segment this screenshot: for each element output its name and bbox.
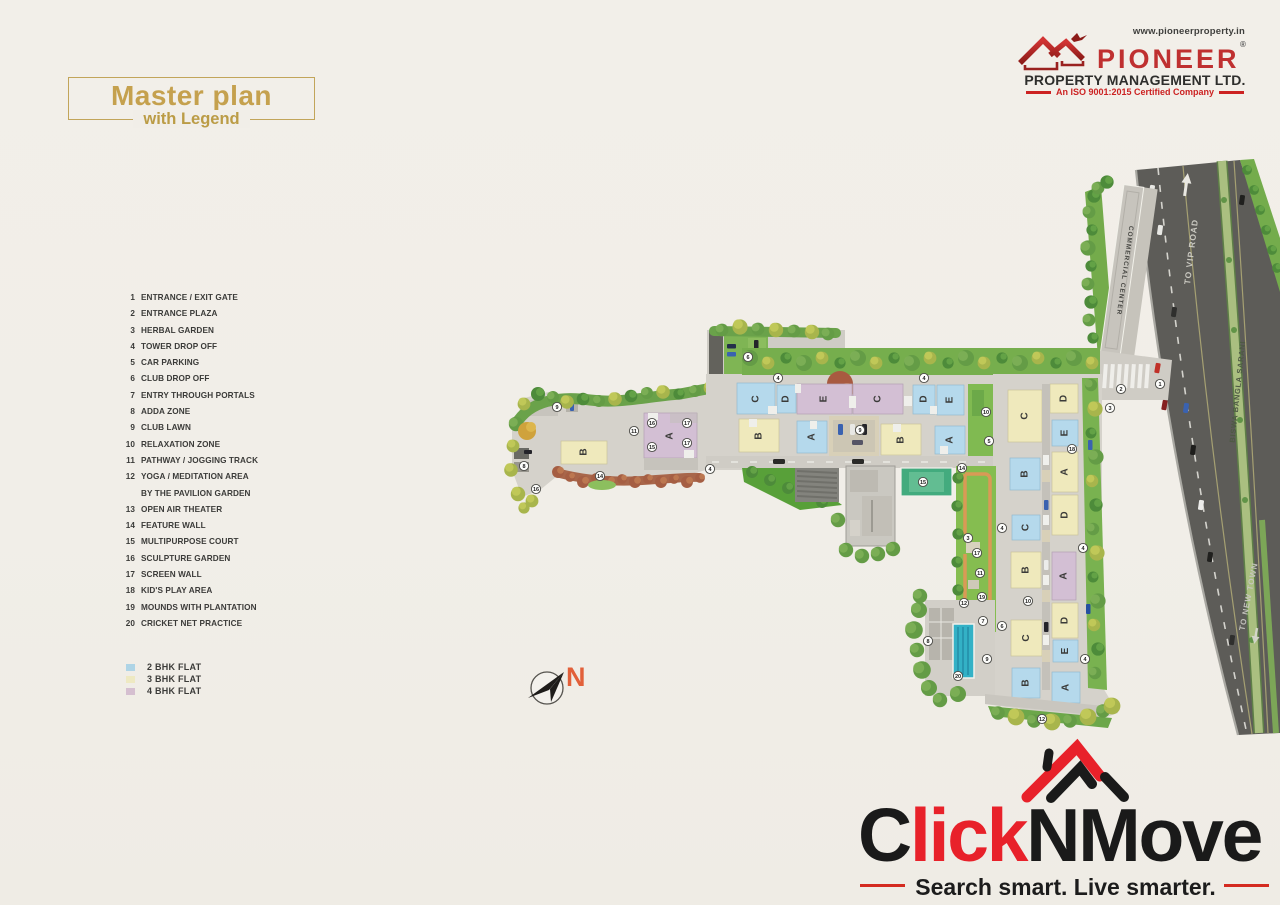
svg-text:10: 10 [983, 410, 989, 416]
svg-text:A: A [945, 436, 956, 443]
svg-text:D: D [1060, 617, 1071, 624]
svg-text:A: A [1060, 468, 1071, 475]
svg-text:6: 6 [746, 355, 749, 361]
svg-text:3: 3 [966, 536, 969, 542]
svg-text:8: 8 [522, 464, 525, 470]
svg-text:19: 19 [979, 595, 985, 601]
svg-text:14: 14 [959, 466, 966, 472]
svg-text:A: A [1061, 684, 1072, 691]
svg-text:16: 16 [533, 487, 539, 493]
svg-text:11: 11 [631, 429, 637, 435]
svg-text:17: 17 [684, 421, 690, 427]
svg-text:C: C [1021, 634, 1032, 641]
svg-text:17: 17 [684, 441, 690, 447]
svg-text:A: A [807, 433, 818, 440]
svg-text:17: 17 [974, 551, 980, 557]
svg-text:15: 15 [649, 445, 655, 451]
svg-text:B: B [1020, 470, 1031, 477]
svg-text:7: 7 [981, 619, 984, 625]
svg-text:C: C [1021, 524, 1032, 531]
svg-text:9: 9 [555, 405, 558, 411]
svg-text:B: B [1021, 566, 1032, 573]
svg-text:9: 9 [858, 428, 861, 434]
svg-text:A: A [665, 432, 676, 439]
svg-text:14: 14 [597, 474, 604, 480]
svg-text:E: E [945, 396, 956, 403]
svg-text:D: D [919, 395, 930, 402]
svg-text:C: C [751, 395, 762, 402]
svg-text:D: D [1059, 395, 1070, 402]
svg-text:15: 15 [920, 480, 926, 486]
svg-text:5: 5 [987, 439, 990, 445]
svg-text:8: 8 [926, 639, 929, 645]
svg-text:B: B [754, 432, 765, 439]
svg-text:B: B [896, 436, 907, 443]
svg-text:E: E [1060, 647, 1071, 654]
svg-text:1: 1 [1158, 382, 1161, 388]
svg-text:10: 10 [1025, 599, 1031, 605]
svg-text:16: 16 [649, 421, 655, 427]
svg-text:E: E [819, 395, 830, 402]
svg-text:C: C [1020, 412, 1031, 419]
svg-text:D: D [1060, 511, 1071, 518]
svg-text:11: 11 [977, 571, 983, 577]
svg-text:3: 3 [1108, 406, 1111, 412]
svg-text:B: B [1021, 679, 1032, 686]
svg-text:6: 6 [1000, 624, 1003, 630]
svg-text:C: C [873, 395, 884, 402]
svg-text:12: 12 [961, 601, 967, 607]
svg-text:20: 20 [955, 674, 961, 680]
svg-text:12: 12 [1039, 717, 1045, 723]
svg-text:D: D [781, 395, 792, 402]
svg-text:N: N [566, 662, 586, 692]
svg-text:9: 9 [985, 657, 988, 663]
svg-text:18: 18 [1069, 447, 1075, 453]
svg-text:A: A [1059, 572, 1070, 579]
svg-text:2: 2 [1119, 387, 1122, 393]
svg-text:E: E [1060, 429, 1071, 436]
svg-text:B: B [579, 448, 590, 455]
